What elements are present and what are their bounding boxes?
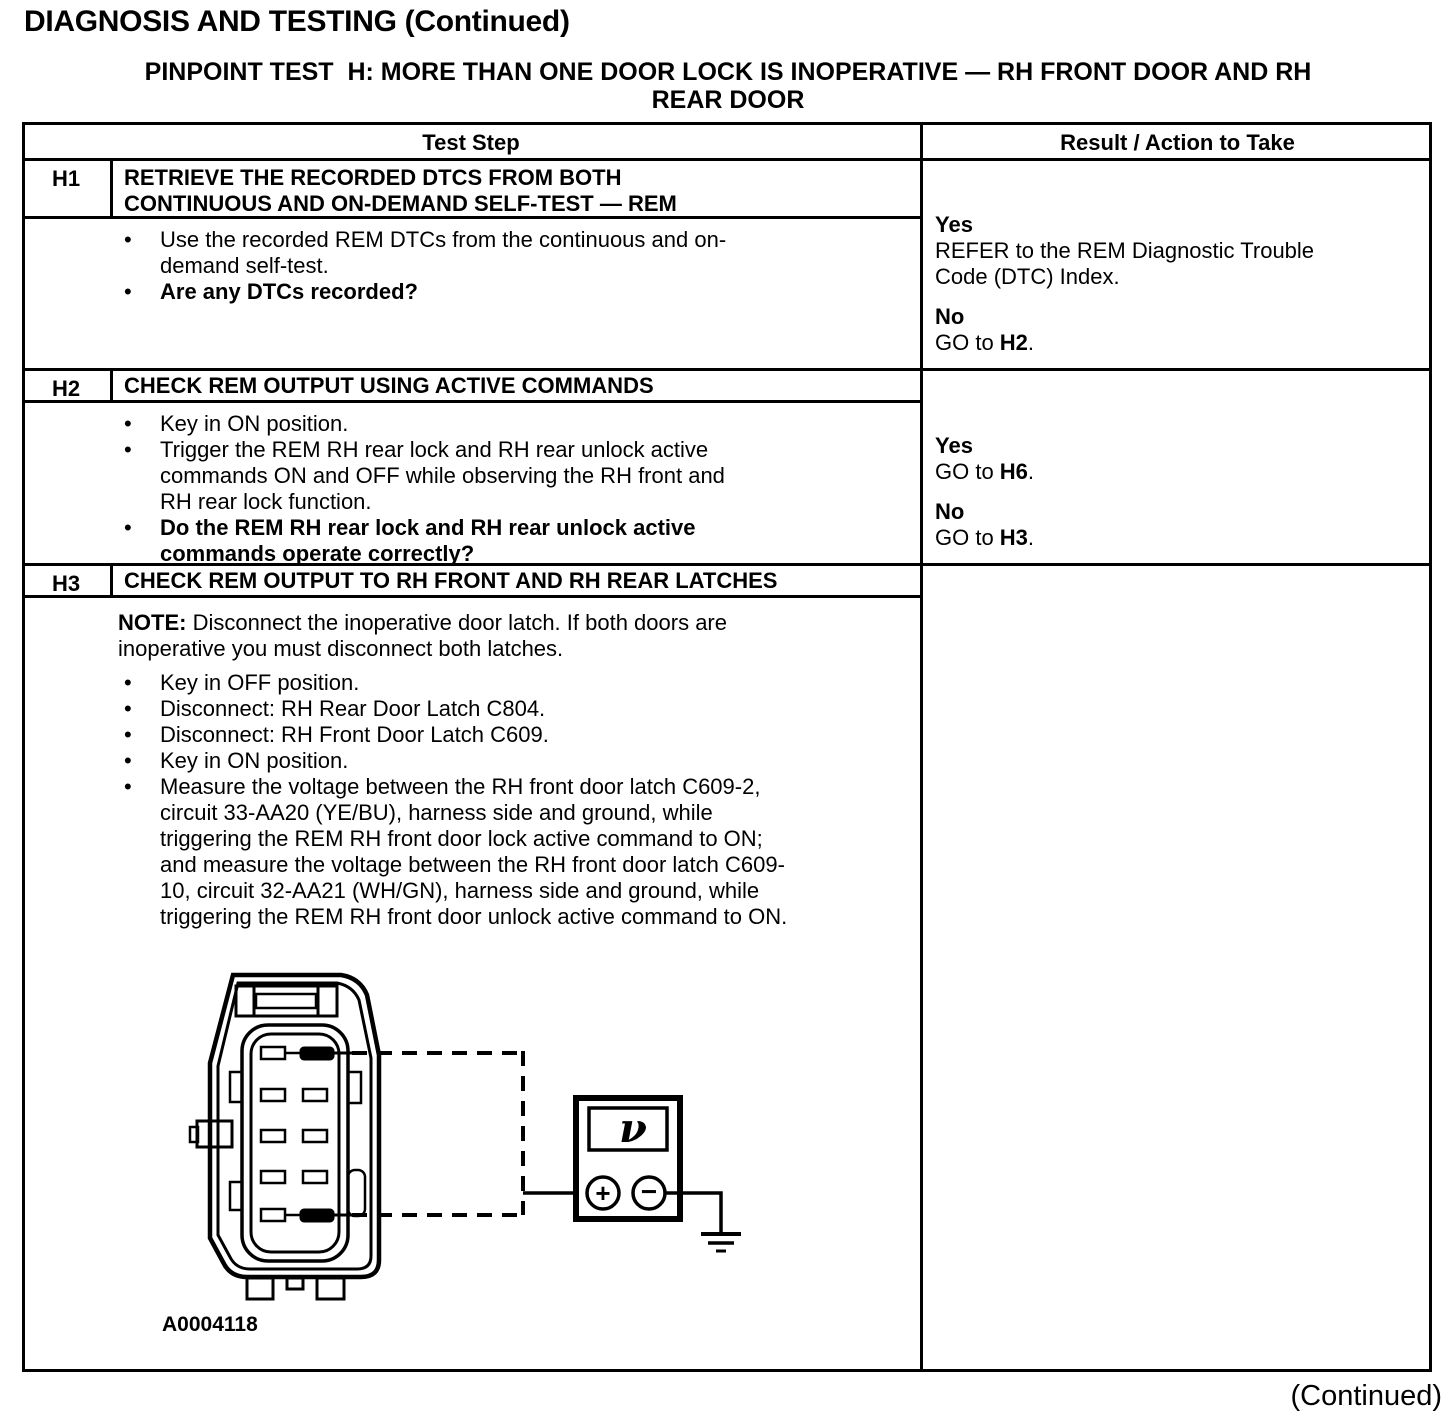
connector-foot: [317, 1278, 344, 1299]
connector-latch-band: [236, 986, 337, 1016]
continued-label: (Continued): [1290, 1380, 1442, 1413]
connector-pin: [303, 1130, 327, 1142]
figure-label: A0004118: [162, 1313, 258, 1336]
connector-outer-shell: [210, 975, 379, 1277]
connector-foot: [247, 1278, 273, 1299]
connector-key: [230, 1182, 242, 1210]
connector-pin: [303, 1171, 327, 1183]
door-latch-connector: [190, 975, 379, 1299]
connector-pin: [261, 1171, 285, 1183]
connector-pin: [261, 1089, 285, 1101]
ground-icon: [701, 1234, 741, 1251]
connector-foot: [287, 1278, 303, 1289]
minus-terminal-icon: −: [641, 1176, 657, 1207]
connector-cavity-outer: [242, 1025, 348, 1261]
connector-side-tab: [197, 1121, 232, 1147]
voltmeter-display-symbol: ν: [619, 1105, 647, 1152]
connector-voltmeter-diagram: ν + − A0004118: [0, 0, 1456, 1418]
test-probe: [300, 1209, 334, 1222]
connector-pin: [303, 1089, 327, 1101]
connector-pin: [261, 1047, 285, 1059]
voltmeter: ν + −: [523, 1098, 741, 1251]
connector-keyway: [348, 1170, 365, 1216]
connector-latch-slot: [256, 994, 316, 1008]
document-page: DIAGNOSIS AND TESTING (Continued) PINPOI…: [0, 0, 1456, 1418]
connector-side-tab-cap: [190, 1127, 198, 1142]
test-probe: [300, 1047, 334, 1060]
connector-key: [230, 1072, 242, 1102]
plus-terminal-icon: +: [595, 1178, 610, 1208]
connector-pin: [261, 1209, 285, 1221]
connector-key: [348, 1072, 361, 1103]
connector-pin: [261, 1130, 285, 1142]
